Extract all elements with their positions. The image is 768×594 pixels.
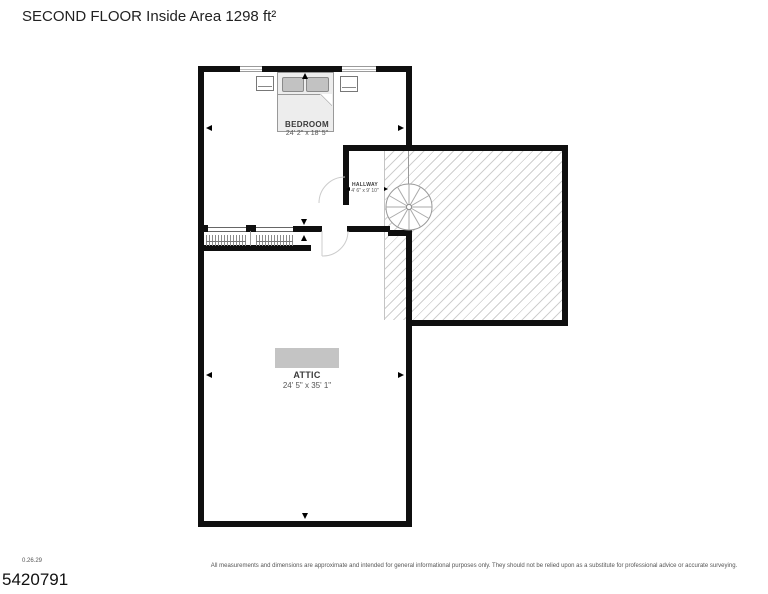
closet-divider bbox=[250, 231, 251, 246]
pillow bbox=[306, 77, 329, 92]
spiral-staircase bbox=[385, 183, 435, 233]
blanket-fold bbox=[320, 94, 332, 106]
bedroom-label: BEDROOM 24' 2" x 18' 5" bbox=[257, 120, 357, 139]
dimension-arrow-right-icon bbox=[398, 372, 404, 378]
wall-hatch-bottom bbox=[406, 320, 568, 326]
wall-west bbox=[198, 66, 204, 527]
hallway-dim-arrow-left-icon bbox=[346, 187, 350, 191]
wall-hatch-right bbox=[562, 145, 568, 326]
opening-arrow-down-icon bbox=[301, 219, 307, 225]
attic-dims: 24' 5" x 35' 1" bbox=[257, 381, 357, 391]
dimension-arrow-down-icon bbox=[302, 513, 308, 519]
wall-bottom bbox=[198, 521, 412, 527]
dimension-arrow-right-icon bbox=[398, 125, 404, 131]
closet-rod-hangers bbox=[206, 235, 246, 246]
wall-bedroom-attic-left bbox=[293, 226, 322, 232]
wall-east-upper bbox=[406, 66, 412, 151]
stair-enclosure-line bbox=[408, 151, 409, 185]
hallway-dim-arrow-right-icon bbox=[384, 187, 388, 191]
closet-stub-left bbox=[198, 225, 208, 232]
dimension-arrow-left-icon bbox=[206, 372, 212, 378]
page-title: SECOND FLOOR Inside Area 1298 ft² bbox=[22, 8, 276, 25]
opening-arrow-up-icon bbox=[301, 235, 307, 241]
nightstand bbox=[256, 76, 274, 91]
closet-rod-hangers bbox=[256, 235, 293, 246]
window bbox=[342, 66, 376, 72]
pillow bbox=[282, 77, 304, 92]
closet-stub-mid bbox=[246, 225, 256, 232]
closet-sliding-door bbox=[208, 227, 246, 232]
attic-name: ATTIC bbox=[257, 370, 357, 381]
wall-bedroom-attic-right bbox=[347, 226, 390, 232]
attic-object bbox=[275, 348, 339, 368]
wall-hatch-top bbox=[343, 145, 568, 151]
dimension-arrow-left-icon bbox=[206, 125, 212, 131]
closet-sliding-door bbox=[256, 227, 293, 232]
door-arc-hallway-attic bbox=[320, 229, 350, 259]
listing-id: 5420791 bbox=[2, 570, 68, 590]
footer-version: 0.26.29 bbox=[22, 558, 42, 564]
nightstand bbox=[340, 76, 358, 92]
disclaimer-text: All measurements and dimensions are appr… bbox=[200, 563, 748, 569]
wall-east-lower bbox=[406, 232, 412, 527]
bed-entry-arrow-icon bbox=[302, 73, 308, 79]
bedroom-name: BEDROOM bbox=[257, 120, 357, 130]
window bbox=[240, 66, 262, 72]
bedroom-dims: 24' 2" x 18' 5" bbox=[257, 130, 357, 139]
floorplan-page: SECOND FLOOR Inside Area 1298 ft² bbox=[0, 0, 768, 594]
wall-top-left bbox=[198, 66, 240, 72]
attic-label: ATTIC 24' 5" x 35' 1" bbox=[257, 370, 357, 391]
